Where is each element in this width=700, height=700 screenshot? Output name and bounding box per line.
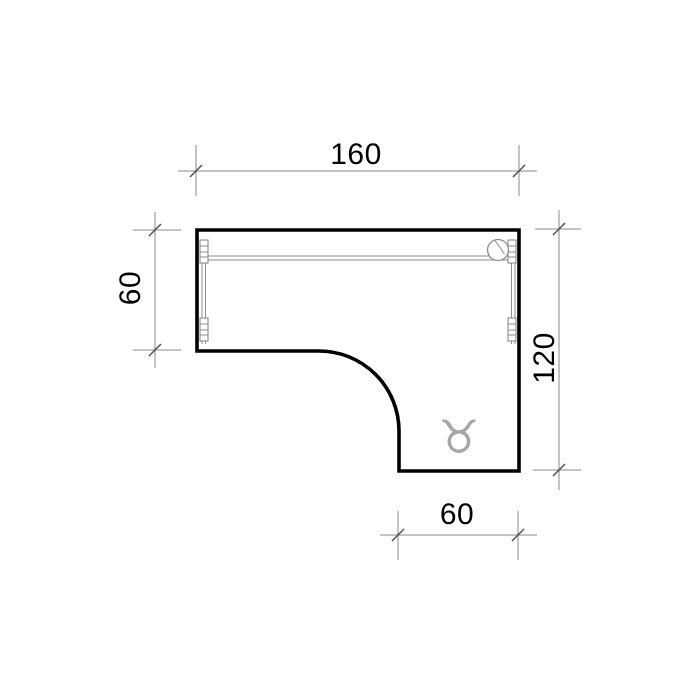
- desk-technical-drawing: [0, 0, 700, 700]
- dimension-left-label: 60: [116, 271, 146, 305]
- cable-grommet-icon: [488, 240, 509, 261]
- dimension-bottom-label: 60: [440, 500, 474, 530]
- connector-bracket: [508, 240, 516, 263]
- dimension-top-label: 160: [330, 140, 382, 170]
- dimension-right-label: 120: [530, 332, 560, 384]
- bull-logo-icon: ♉: [438, 414, 479, 460]
- connector-bracket: [200, 318, 208, 341]
- drawing-canvas: 160 60 120 60 ♉: [0, 0, 700, 700]
- grommet-circle: [488, 240, 509, 261]
- connector-bracket: [508, 318, 516, 341]
- connector-bracket: [200, 240, 208, 263]
